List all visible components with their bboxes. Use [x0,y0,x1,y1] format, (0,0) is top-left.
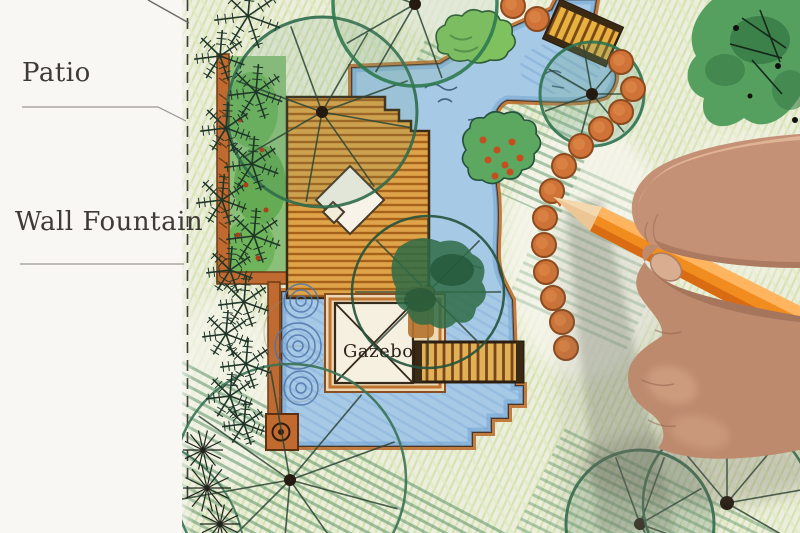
corner-shrub [688,0,800,126]
label-gazebo: Gazebo [343,341,414,362]
landscape-plan-photo: Patio Wall Fountain Gazebo [0,0,800,533]
label-patio: Patio [22,58,91,88]
landscape-plan-drawing [0,0,800,533]
boardwalk [415,342,523,382]
label-wall-fountain: Wall Fountain [15,207,203,237]
